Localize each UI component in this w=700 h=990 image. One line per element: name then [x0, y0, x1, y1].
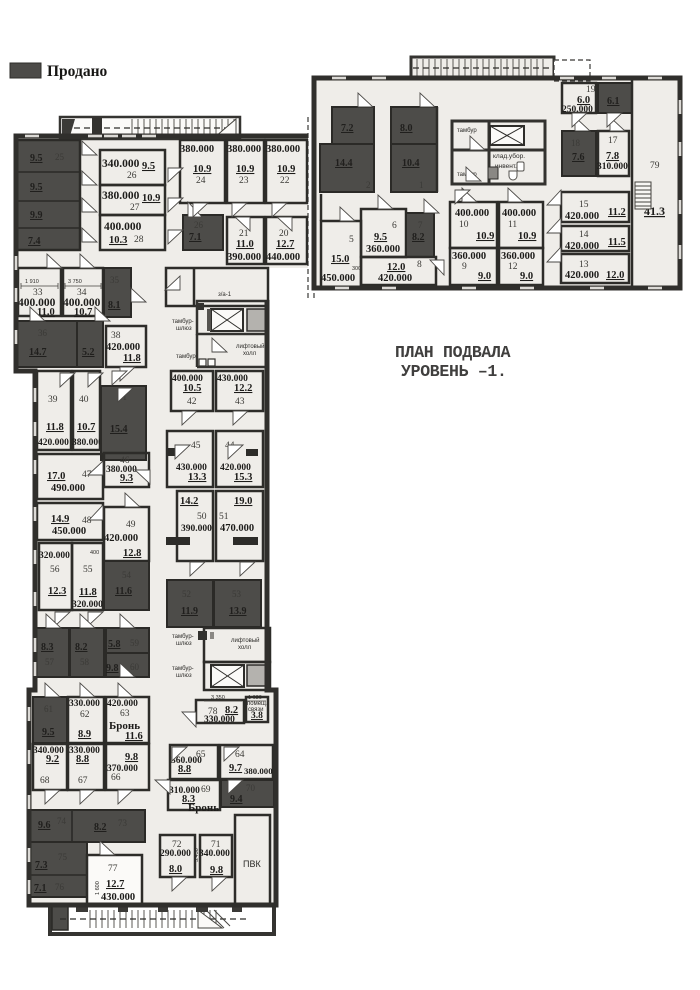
svg-text:8.2: 8.2	[94, 822, 107, 833]
svg-text:10.7: 10.7	[77, 422, 95, 433]
svg-text:420.000: 420.000	[106, 342, 140, 353]
svg-text:52: 52	[182, 589, 191, 599]
svg-text:6.1: 6.1	[607, 96, 620, 107]
svg-text:11.8: 11.8	[123, 353, 141, 364]
svg-text:15: 15	[579, 200, 589, 210]
svg-text:400.000: 400.000	[455, 208, 489, 219]
svg-text:8.9: 8.9	[78, 729, 91, 740]
svg-text:320.000: 320.000	[39, 551, 70, 561]
svg-text:3.8: 3.8	[251, 711, 263, 721]
svg-text:11.0: 11.0	[236, 239, 254, 250]
svg-text:440.000: 440.000	[266, 252, 300, 263]
svg-text:10.9: 10.9	[142, 193, 160, 204]
svg-text:48: 48	[82, 516, 92, 526]
svg-text:43: 43	[235, 397, 245, 407]
svg-text:73: 73	[118, 818, 128, 828]
svg-text:27: 27	[130, 203, 140, 213]
svg-text:7.4: 7.4	[28, 236, 41, 247]
svg-text:10: 10	[459, 220, 469, 230]
svg-text:18: 18	[571, 138, 581, 148]
svg-text:9.5: 9.5	[374, 232, 387, 243]
svg-text:тамбур: тамбур	[457, 128, 477, 134]
svg-text:390.000: 390.000	[181, 524, 212, 534]
svg-text:7.1: 7.1	[189, 232, 202, 243]
svg-text:7.6: 7.6	[572, 152, 585, 163]
svg-text:11.8: 11.8	[79, 587, 97, 598]
svg-text:1 910: 1 910	[25, 279, 39, 285]
svg-text:59: 59	[130, 638, 140, 648]
svg-text:45: 45	[191, 441, 201, 451]
svg-text:400.000: 400.000	[104, 221, 142, 233]
svg-text:70: 70	[246, 783, 256, 793]
svg-text:290.000: 290.000	[160, 849, 191, 859]
svg-text:77: 77	[108, 864, 118, 874]
svg-text:390.000: 390.000	[227, 252, 261, 263]
svg-text:470.000: 470.000	[220, 523, 254, 534]
svg-text:64: 64	[235, 750, 245, 760]
svg-text:19.0: 19.0	[234, 496, 252, 507]
svg-text:24: 24	[196, 176, 206, 186]
svg-text:5: 5	[349, 235, 354, 245]
svg-text:450.000: 450.000	[321, 273, 355, 284]
svg-text:430.000: 430.000	[101, 892, 135, 903]
svg-text:51: 51	[219, 512, 229, 522]
svg-text:330.000: 330.000	[204, 715, 235, 725]
svg-text:8.1: 8.1	[108, 300, 121, 311]
svg-text:38: 38	[111, 331, 121, 341]
svg-text:20: 20	[279, 229, 289, 239]
svg-text:8.0: 8.0	[400, 123, 413, 134]
svg-text:490.000: 490.000	[51, 483, 85, 494]
svg-text:23: 23	[239, 176, 249, 186]
svg-text:15.3: 15.3	[234, 472, 252, 483]
svg-text:10.9: 10.9	[193, 164, 211, 175]
svg-text:8.2: 8.2	[412, 232, 425, 243]
svg-text:420.000: 420.000	[565, 270, 599, 281]
svg-text:12.0: 12.0	[606, 270, 624, 281]
svg-text:холл: холл	[238, 645, 252, 651]
svg-text:1: 1	[419, 180, 424, 190]
svg-text:9.0: 9.0	[478, 271, 491, 282]
svg-text:76: 76	[55, 882, 65, 892]
svg-text:лифтовый: лифтовый	[236, 343, 265, 350]
svg-text:10.9: 10.9	[476, 231, 494, 242]
svg-text:14: 14	[579, 230, 589, 240]
svg-text:8.8: 8.8	[76, 754, 89, 765]
svg-text:9.3: 9.3	[120, 473, 133, 484]
svg-text:12.7: 12.7	[106, 879, 124, 890]
svg-text:340.000: 340.000	[199, 849, 230, 859]
svg-text:42: 42	[187, 397, 197, 407]
svg-text:9.4: 9.4	[230, 794, 243, 805]
svg-text:360.000: 360.000	[501, 251, 535, 262]
svg-text:69: 69	[201, 785, 211, 795]
svg-text:340.000: 340.000	[102, 158, 140, 170]
svg-text:11: 11	[508, 220, 517, 230]
svg-text:9.9: 9.9	[30, 210, 43, 221]
svg-text:330.000: 330.000	[69, 699, 100, 709]
svg-text:8.0: 8.0	[169, 864, 182, 875]
svg-text:9.0: 9.0	[520, 271, 533, 282]
svg-text:67: 67	[78, 776, 88, 786]
svg-text:57: 57	[45, 657, 55, 667]
svg-text:380.000: 380.000	[102, 190, 140, 202]
svg-text:19: 19	[586, 85, 596, 95]
svg-text:420.000: 420.000	[107, 699, 138, 709]
svg-text:9.7: 9.7	[229, 763, 242, 774]
svg-text:56: 56	[50, 565, 60, 575]
svg-text:9.6: 9.6	[38, 820, 51, 831]
svg-text:22: 22	[280, 176, 290, 186]
svg-text:17: 17	[608, 136, 618, 146]
svg-text:11.6: 11.6	[125, 731, 143, 742]
svg-text:10.5: 10.5	[183, 383, 201, 394]
svg-text:шлюз: шлюз	[176, 326, 192, 332]
svg-text:420.000: 420.000	[565, 211, 599, 222]
svg-text:8: 8	[417, 260, 422, 270]
svg-text:ПЛАН ПОДВАЛА: ПЛАН ПОДВАЛА	[395, 343, 511, 362]
svg-text:55: 55	[83, 565, 93, 575]
svg-text:320.000: 320.000	[72, 600, 103, 610]
svg-text:50: 50	[197, 512, 207, 522]
svg-text:12.2: 12.2	[234, 383, 252, 394]
svg-text:з/а-1: з/а-1	[218, 292, 232, 298]
svg-text:3 350: 3 350	[211, 695, 225, 701]
svg-text:13.9: 13.9	[229, 606, 247, 617]
svg-text:12: 12	[508, 262, 518, 272]
svg-text:53: 53	[232, 589, 242, 599]
svg-text:14.7: 14.7	[29, 347, 47, 358]
svg-text:7.3: 7.3	[35, 860, 48, 871]
svg-text:1 600: 1 600	[95, 881, 101, 895]
svg-text:26: 26	[127, 171, 137, 181]
svg-text:8.2: 8.2	[75, 642, 88, 653]
svg-text:8.3: 8.3	[41, 642, 54, 653]
svg-text:11.5: 11.5	[608, 237, 626, 248]
svg-text:62: 62	[80, 710, 90, 720]
svg-text:7.1: 7.1	[34, 883, 47, 894]
svg-text:58: 58	[80, 657, 90, 667]
svg-text:75: 75	[58, 852, 68, 862]
svg-text:380.000: 380.000	[227, 144, 261, 155]
svg-text:11.6: 11.6	[115, 586, 132, 597]
svg-text:Бронь: Бронь	[188, 802, 219, 814]
svg-text:10.9: 10.9	[236, 164, 254, 175]
svg-text:68: 68	[40, 776, 50, 786]
svg-text:63: 63	[120, 709, 130, 719]
svg-text:420.000: 420.000	[38, 438, 69, 448]
svg-text:12.8: 12.8	[123, 548, 141, 559]
svg-text:380.000: 380.000	[180, 144, 214, 155]
svg-text:9.8: 9.8	[210, 865, 223, 876]
svg-text:35: 35	[110, 275, 120, 285]
svg-text:9.5: 9.5	[42, 727, 55, 738]
svg-text:11.9: 11.9	[181, 606, 198, 617]
svg-text:3.450: 3.450	[194, 848, 200, 862]
svg-text:36: 36	[38, 328, 48, 338]
svg-text:клад.убор.: клад.убор.	[493, 152, 525, 160]
svg-text:3 750: 3 750	[68, 279, 82, 285]
svg-text:9.2: 9.2	[46, 754, 59, 765]
svg-text:21: 21	[239, 229, 249, 239]
svg-text:шлюз: шлюз	[176, 641, 192, 647]
svg-text:9.5: 9.5	[30, 153, 43, 164]
svg-text:25: 25	[55, 152, 65, 162]
svg-text:360.000: 360.000	[366, 244, 400, 255]
svg-text:15.0: 15.0	[331, 254, 349, 265]
svg-text:5.2: 5.2	[82, 347, 95, 358]
svg-text:12.3: 12.3	[48, 586, 66, 597]
svg-text:10.4: 10.4	[402, 158, 420, 169]
svg-text:14.9: 14.9	[51, 514, 69, 525]
svg-text:шлюз: шлюз	[176, 673, 192, 679]
svg-text:13.3: 13.3	[188, 472, 206, 483]
svg-text:420.000: 420.000	[565, 241, 599, 252]
svg-text:380.000: 380.000	[72, 438, 103, 448]
svg-text:74: 74	[57, 816, 67, 826]
svg-text:10.9: 10.9	[277, 164, 295, 175]
svg-text:5.8: 5.8	[108, 639, 121, 650]
svg-text:15.4: 15.4	[110, 424, 128, 435]
svg-text:11.8: 11.8	[46, 422, 64, 433]
svg-text:9.8: 9.8	[125, 752, 138, 763]
svg-text:79: 79	[650, 161, 660, 171]
svg-text:14.2: 14.2	[180, 496, 198, 507]
svg-text:10.3: 10.3	[109, 235, 127, 246]
svg-text:450.000: 450.000	[52, 526, 86, 537]
svg-text:39: 39	[48, 395, 58, 405]
svg-text:лифтовый: лифтовый	[231, 637, 260, 644]
svg-text:УРОВЕНЬ –1.: УРОВЕНЬ –1.	[401, 362, 507, 381]
svg-text:10.9: 10.9	[518, 231, 536, 242]
svg-text:360.000: 360.000	[452, 251, 486, 262]
svg-text:9: 9	[462, 262, 467, 272]
svg-text:400: 400	[90, 550, 99, 556]
svg-text:13: 13	[579, 260, 589, 270]
svg-text:49: 49	[126, 520, 136, 530]
svg-text:400.000: 400.000	[502, 208, 536, 219]
svg-text:7.8: 7.8	[606, 151, 619, 162]
svg-text:тамбур-: тамбур-	[172, 319, 194, 325]
svg-text:Продано: Продано	[47, 63, 108, 80]
svg-text:60: 60	[130, 662, 140, 672]
svg-text:11.2: 11.2	[608, 207, 626, 218]
svg-text:12.0: 12.0	[387, 262, 405, 273]
svg-text:54: 54	[122, 570, 132, 580]
svg-text:9.5: 9.5	[142, 161, 155, 172]
svg-text:420.000: 420.000	[104, 533, 138, 544]
svg-text:26: 26	[194, 220, 204, 230]
svg-text:7: 7	[418, 220, 423, 230]
svg-text:40: 40	[79, 395, 89, 405]
svg-text:28: 28	[134, 235, 144, 245]
svg-text:тамбур-: тамбур-	[172, 666, 194, 672]
svg-text:17.0: 17.0	[47, 471, 65, 482]
svg-text:ПВК: ПВК	[243, 859, 261, 869]
svg-text:14.4: 14.4	[335, 158, 353, 169]
svg-text:380.000: 380.000	[244, 766, 273, 776]
svg-text:10.7: 10.7	[74, 307, 92, 318]
svg-text:холл: холл	[243, 351, 257, 357]
svg-text:9.5: 9.5	[30, 182, 43, 193]
svg-text:тамбур-: тамбур-	[172, 634, 194, 640]
svg-text:6: 6	[392, 221, 397, 231]
svg-text:61: 61	[44, 704, 53, 714]
svg-text:420.000: 420.000	[378, 273, 412, 284]
svg-text:7.2: 7.2	[341, 123, 354, 134]
svg-text:310.000: 310.000	[597, 162, 628, 172]
svg-text:9.8: 9.8	[106, 663, 119, 674]
svg-text:66: 66	[111, 773, 121, 783]
svg-text:8.8: 8.8	[178, 764, 191, 775]
svg-text:12.7: 12.7	[276, 239, 294, 250]
svg-text:380.000: 380.000	[266, 144, 300, 155]
svg-text:тамбур: тамбур	[176, 354, 196, 360]
svg-text:2: 2	[366, 180, 371, 190]
